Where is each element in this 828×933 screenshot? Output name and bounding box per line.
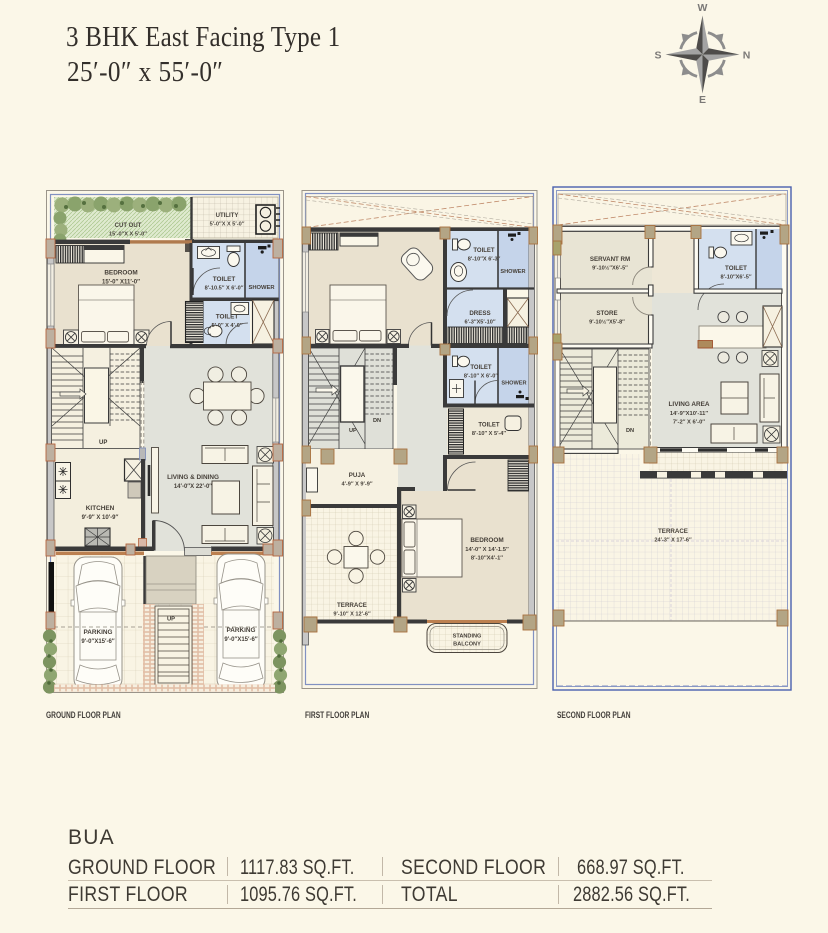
svg-text:BALCONY: BALCONY — [453, 642, 481, 648]
svg-text:SHOWER: SHOWER — [501, 381, 526, 387]
svg-text:9′-10″ X 12′-6″: 9′-10″ X 12′-6″ — [333, 612, 371, 618]
svg-text:CUT OUT: CUT OUT — [115, 223, 142, 229]
svg-text:BEDROOM: BEDROOM — [470, 537, 503, 544]
svg-text:7′-2″ X 6′-0″: 7′-2″ X 6′-0″ — [673, 420, 705, 426]
svg-text:STANDING: STANDING — [453, 634, 482, 640]
svg-text:14′-0″X 22′-0″: 14′-0″X 22′-0″ — [174, 484, 212, 490]
svg-text:5′-0″ X 4′-6″: 5′-0″ X 4′-6″ — [211, 323, 242, 329]
svg-text:4′-9″ X 9′-9″: 4′-9″ X 9′-9″ — [341, 482, 372, 488]
svg-text:24′-3″ X 17′-6″: 24′-3″ X 17′-6″ — [654, 538, 692, 544]
svg-text:9′-10½″X5′-8″: 9′-10½″X5′-8″ — [589, 319, 625, 326]
svg-text:UP: UP — [99, 440, 107, 446]
svg-text:DN: DN — [626, 428, 634, 434]
svg-text:8′-10″X4′-1″: 8′-10″X4′-1″ — [471, 556, 503, 562]
svg-text:UTILITY: UTILITY — [216, 213, 239, 219]
svg-text:LIVING AREA: LIVING AREA — [669, 401, 710, 408]
svg-text:TOILET: TOILET — [725, 265, 747, 272]
svg-text:TERRACE: TERRACE — [658, 528, 688, 535]
svg-text:TERRACE: TERRACE — [337, 602, 367, 609]
svg-text:9′-9″ X 10′-9″: 9′-9″ X 10′-9″ — [82, 515, 119, 521]
svg-text:DN: DN — [373, 418, 381, 424]
svg-text:TOILET: TOILET — [216, 314, 239, 321]
svg-text:8′-10″X6′-5″: 8′-10″X6′-5″ — [720, 275, 751, 281]
svg-text:15′-0″X X 5′-0″: 15′-0″X X 5′-0″ — [109, 232, 147, 238]
svg-text:PARKING: PARKING — [227, 627, 256, 634]
svg-text:BEDROOM: BEDROOM — [104, 270, 137, 277]
svg-text:8′-10″ X 6′-0″: 8′-10″ X 6′-0″ — [464, 374, 498, 380]
svg-text:14′-0″ X 14′-1.5″: 14′-0″ X 14′-1.5″ — [465, 547, 509, 553]
svg-text:DRESS: DRESS — [469, 310, 490, 317]
svg-text:9′-10½″X6′-5″: 9′-10½″X6′-5″ — [592, 265, 628, 272]
svg-text:9′-0″X15′-6″: 9′-0″X15′-6″ — [81, 639, 114, 645]
svg-text:SHOWER: SHOWER — [248, 285, 275, 291]
svg-text:8′-10.5″ X 6′-0″: 8′-10.5″ X 6′-0″ — [205, 286, 244, 292]
svg-text:14′-9″X10′-11″: 14′-9″X10′-11″ — [670, 411, 709, 417]
svg-text:PUJA: PUJA — [349, 472, 366, 479]
svg-text:KITCHEN: KITCHEN — [86, 505, 115, 512]
svg-text:UP: UP — [349, 428, 357, 434]
svg-text:LIVING & DINING: LIVING & DINING — [167, 474, 219, 481]
svg-text:8′-10″X 6′-3″: 8′-10″X 6′-3″ — [468, 257, 501, 263]
svg-text:UP: UP — [167, 617, 175, 623]
svg-text:TOILET: TOILET — [213, 276, 236, 283]
svg-text:SERVANT RM: SERVANT RM — [590, 256, 630, 263]
svg-text:9′-0″X15′-6″: 9′-0″X15′-6″ — [224, 637, 257, 643]
svg-text:8′-10″ X 5′-4″: 8′-10″ X 5′-4″ — [472, 431, 506, 437]
svg-text:SHOWER: SHOWER — [500, 269, 525, 275]
svg-text:TOILET: TOILET — [478, 423, 500, 429]
svg-text:6′-3″X5′-10″: 6′-3″X5′-10″ — [464, 320, 495, 326]
svg-text:STORE: STORE — [596, 310, 617, 317]
svg-text:5′-0″X X 5′-0″: 5′-0″X X 5′-0″ — [210, 222, 245, 228]
svg-text:PARKING: PARKING — [84, 629, 113, 636]
svg-text:TOILET: TOILET — [473, 248, 495, 254]
svg-text:TOILET: TOILET — [470, 365, 492, 371]
